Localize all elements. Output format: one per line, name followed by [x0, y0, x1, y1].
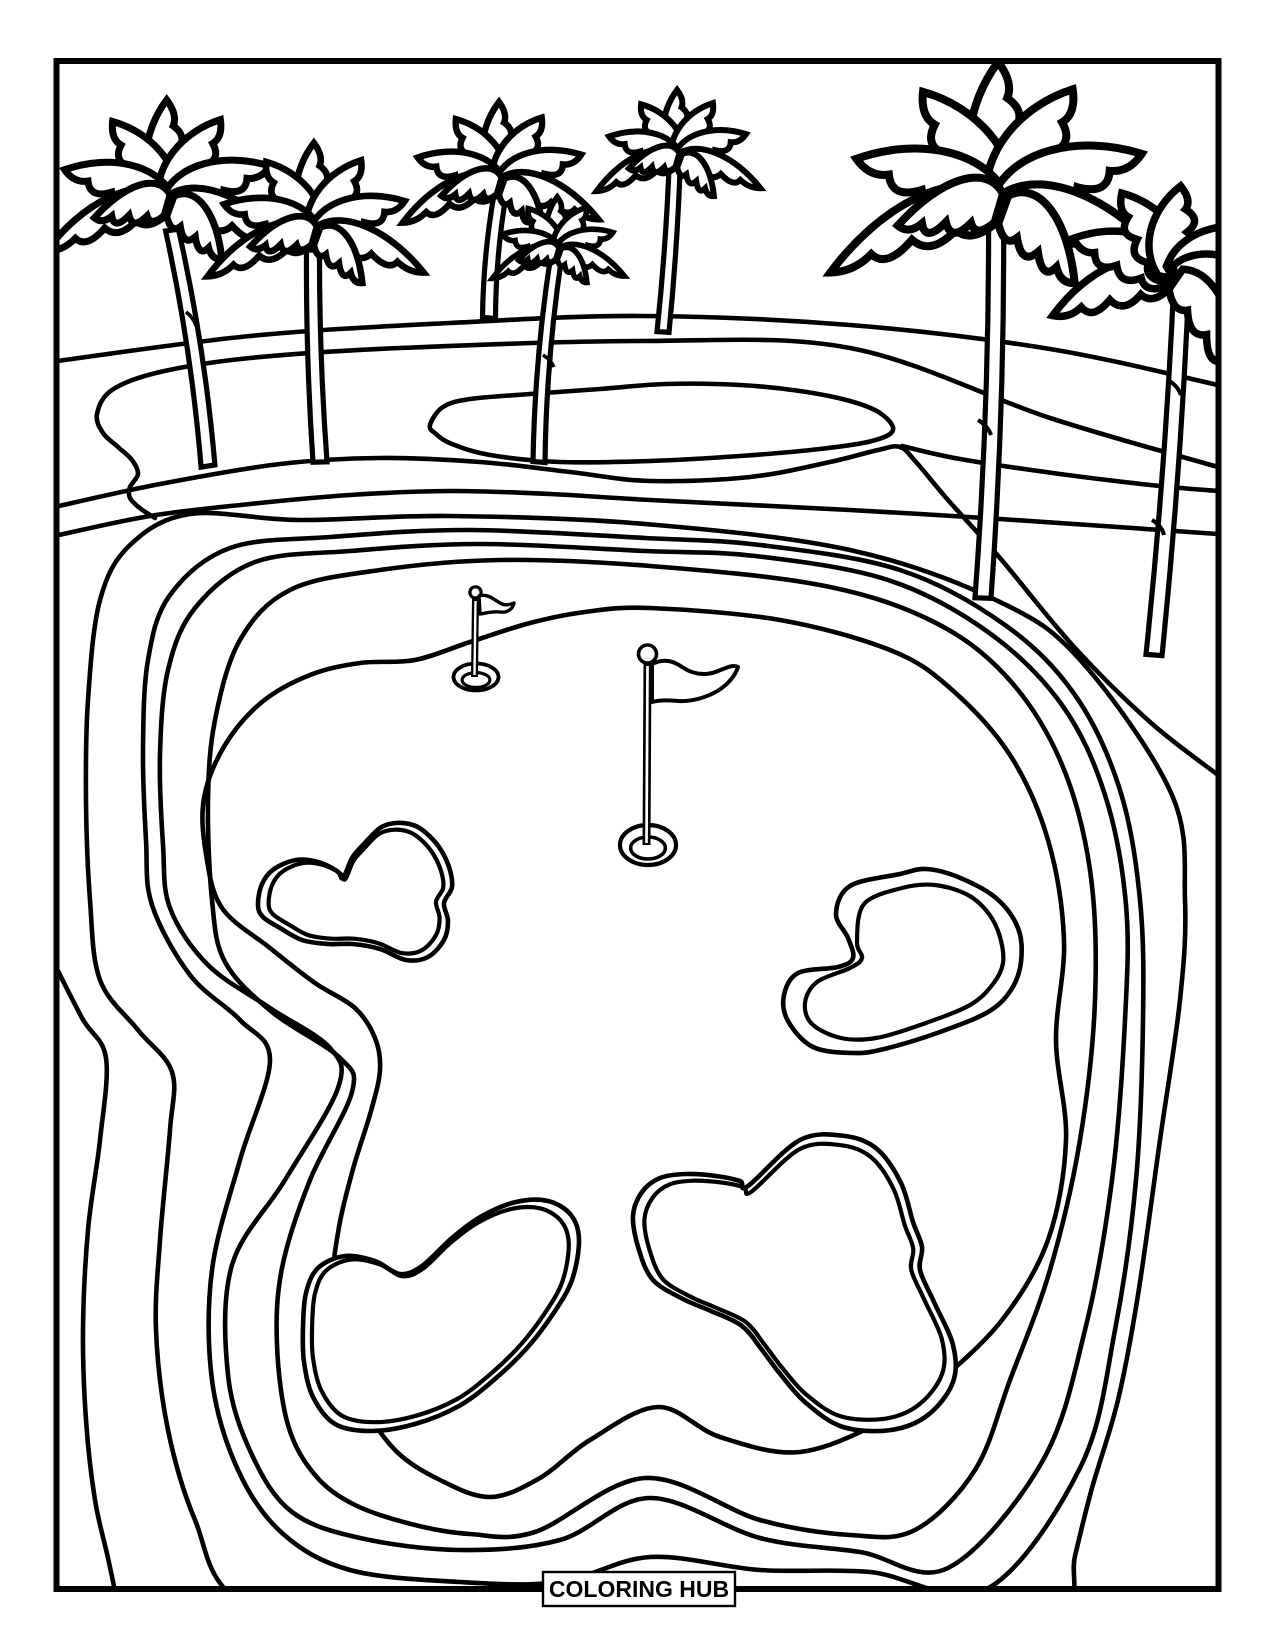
svg-text:COLORING HUB: COLORING HUB — [549, 1576, 729, 1602]
